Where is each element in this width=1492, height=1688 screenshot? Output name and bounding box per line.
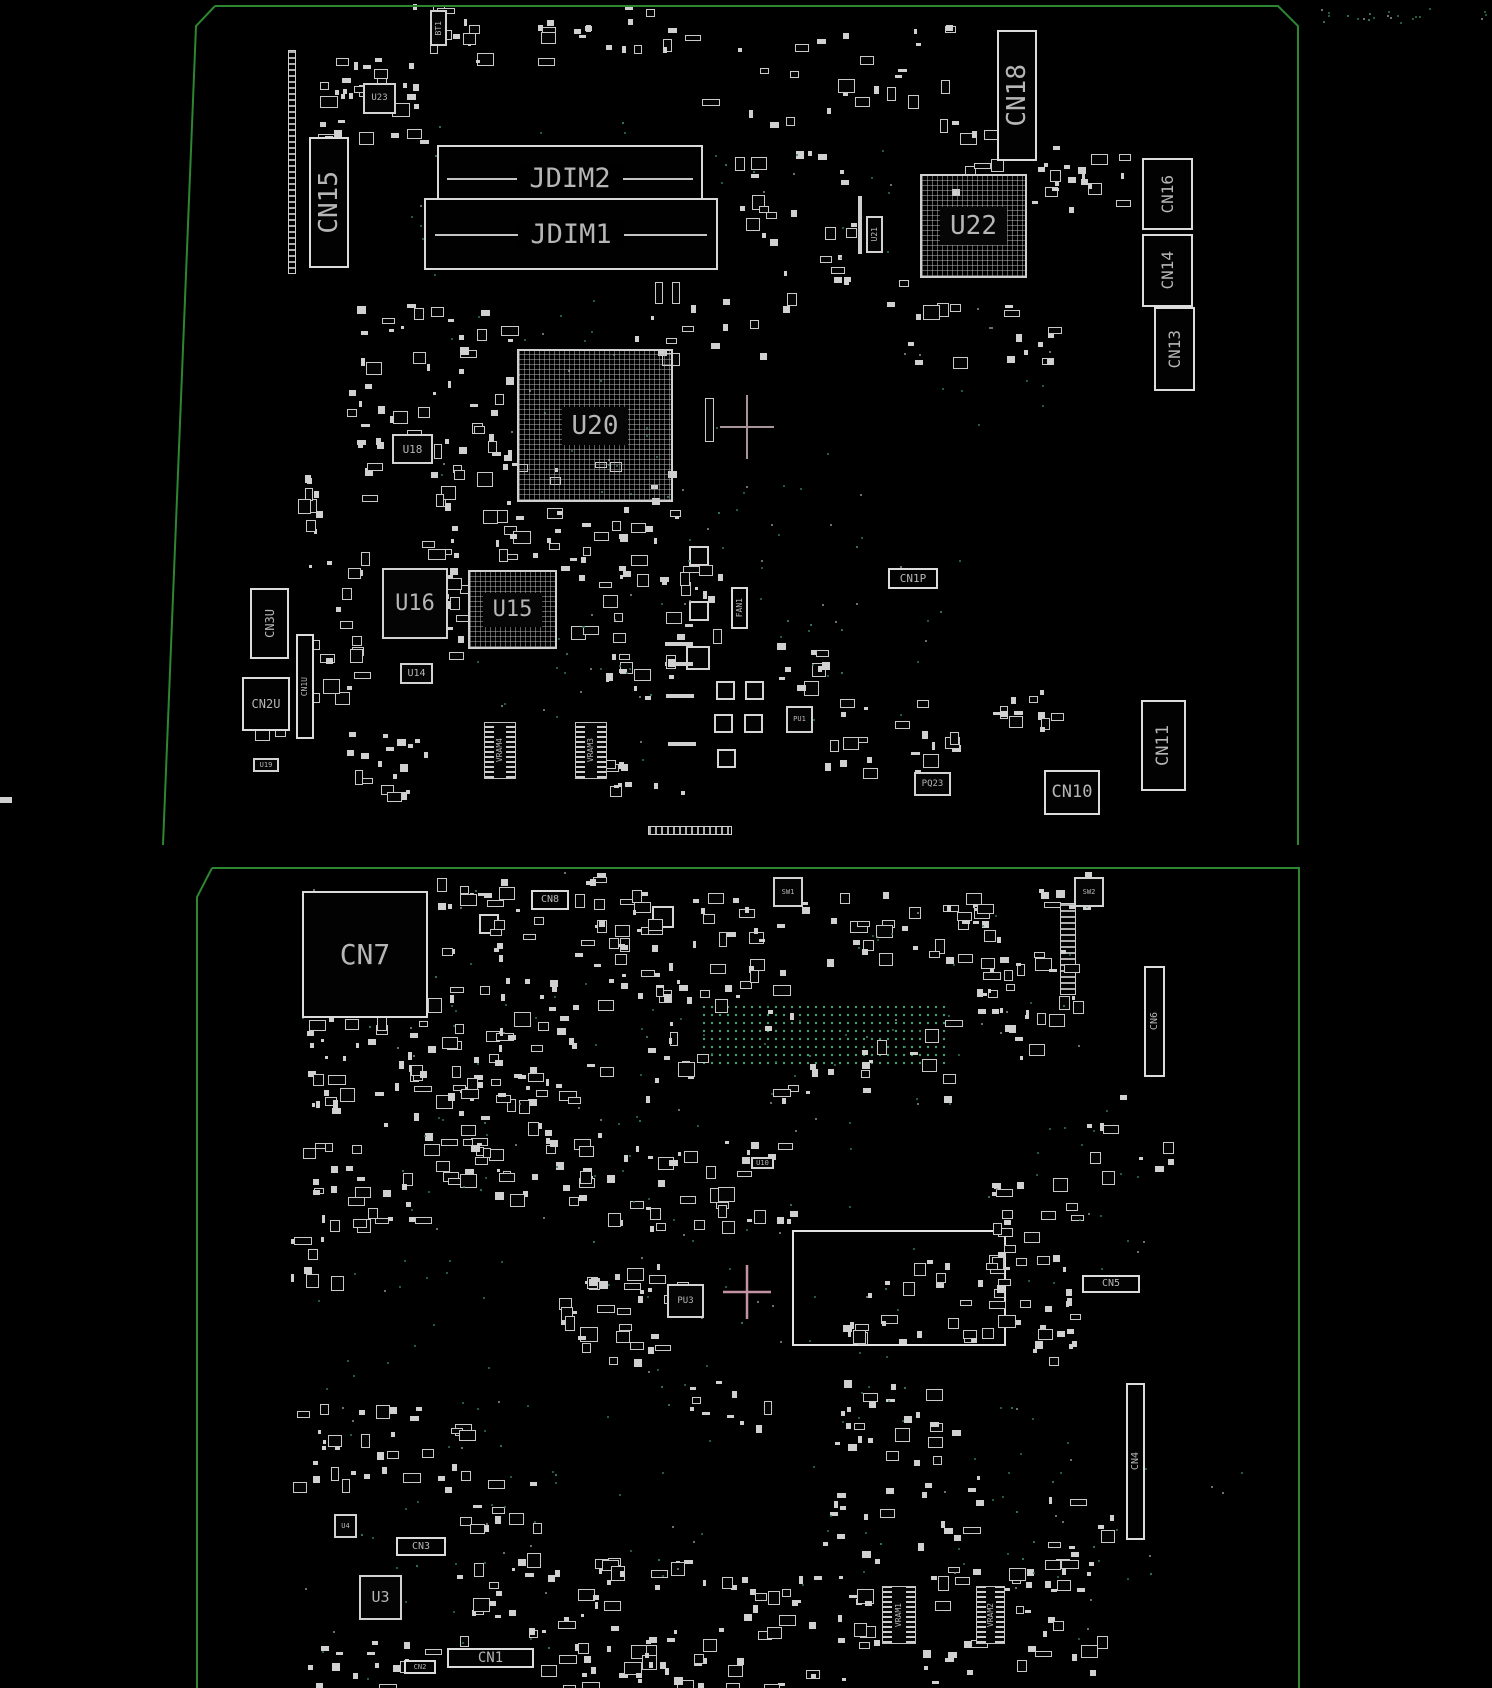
via-dot: [877, 939, 879, 941]
smd-part: [477, 329, 487, 341]
via-dot: [411, 1209, 413, 1211]
smd-part: [313, 1190, 320, 1195]
via-dot: [954, 1572, 956, 1574]
smd-part: [1004, 1267, 1010, 1270]
component-vram1: VRAM1: [882, 1586, 916, 1644]
part-o-22: [705, 398, 714, 442]
smd-part: [1064, 964, 1080, 973]
smd-part: [638, 1296, 643, 1303]
smd-part: [869, 1401, 876, 1408]
smd-part: [424, 1144, 440, 1156]
smd-part: [648, 1048, 656, 1053]
smd-part: [954, 1535, 961, 1541]
smd-part: [613, 633, 626, 643]
smd-part: [916, 1412, 920, 1418]
smd-part: [384, 1123, 388, 1127]
smd-part: [558, 1621, 576, 1629]
smd-part: [972, 1338, 977, 1343]
smd-part: [351, 1471, 356, 1475]
smd-part: [501, 994, 505, 1001]
smd-part: [499, 955, 503, 962]
smd-part: [424, 752, 428, 758]
via-dot: [486, 1134, 488, 1136]
smd-part: [910, 1052, 918, 1055]
via-dot: [917, 912, 919, 914]
smd-part: [840, 699, 855, 708]
smd-part: [361, 424, 370, 427]
smd-part: [416, 1407, 422, 1411]
component-u18: U18: [392, 434, 433, 464]
smd-part: [506, 978, 510, 984]
smd-part: [545, 1130, 552, 1136]
smd-part: [578, 1336, 586, 1340]
via-dot: [461, 1447, 463, 1449]
smd-part: [461, 1125, 476, 1136]
smd-part: [914, 1263, 926, 1276]
smd-part: [710, 964, 726, 974]
smd-part: [842, 1678, 846, 1681]
smd-part: [353, 1673, 358, 1679]
smd-part: [401, 326, 404, 329]
smd-part: [495, 1060, 503, 1066]
smd-part: [402, 1184, 407, 1190]
smd-part: [364, 1474, 370, 1479]
via-dot: [917, 661, 919, 663]
smd-part: [528, 1122, 539, 1136]
via-dot: [958, 1054, 960, 1056]
smd-part: [491, 1079, 501, 1086]
via-dot: [1011, 1407, 1013, 1409]
smd-part: [950, 732, 959, 745]
smd-part: [349, 732, 356, 737]
smd-part: [973, 1569, 981, 1575]
smd-part: [367, 1652, 375, 1655]
component-label-cn14: CN14: [1160, 251, 1176, 290]
smd-part: [307, 1031, 314, 1036]
component-label-cn1: CN1: [478, 1651, 503, 1665]
smd-part: [811, 1674, 816, 1678]
via-dot: [505, 1004, 507, 1006]
smd-part: [340, 1088, 355, 1102]
via-dot: [1429, 8, 1431, 10]
smd-part: [876, 925, 893, 938]
via-dot: [1368, 19, 1370, 21]
smd-part: [874, 1640, 880, 1646]
smd-part: [593, 1595, 599, 1600]
smd-part: [489, 1149, 504, 1161]
smd-part: [903, 1282, 915, 1296]
via-dot: [554, 996, 556, 998]
smd-part: [598, 1133, 602, 1138]
via-dot: [1049, 351, 1051, 353]
via-dot: [484, 1562, 486, 1564]
via-dot: [841, 629, 843, 631]
via-dot: [683, 1234, 685, 1236]
via-dot: [795, 1130, 797, 1132]
smd-part: [407, 129, 422, 139]
smd-part: [316, 511, 323, 518]
via-dot: [1087, 1628, 1089, 1630]
smd-part: [806, 1091, 810, 1094]
smd-part: [529, 1628, 535, 1635]
smd-part: [927, 1260, 933, 1264]
smd-part: [695, 587, 698, 590]
smd-part: [844, 1380, 852, 1388]
smd-part: [336, 1652, 343, 1655]
smd-part: [1040, 690, 1044, 695]
smd-part: [701, 908, 705, 914]
smd-part: [548, 1575, 555, 1582]
via-dot: [361, 1534, 363, 1536]
via-dot: [593, 1241, 595, 1243]
smd-part: [322, 1215, 325, 1223]
component-label-pu3: PU3: [677, 1297, 693, 1306]
smd-part: [1009, 716, 1023, 728]
via-dot: [662, 1472, 664, 1474]
smd-part: [649, 1275, 666, 1284]
smd-part: [908, 95, 919, 109]
smd-part: [670, 1022, 673, 1026]
via-dot: [882, 150, 884, 152]
via-dot: [1079, 1219, 1081, 1221]
smd-part: [431, 307, 444, 317]
smd-part: [343, 1056, 346, 1061]
smd-part: [527, 1553, 541, 1568]
via-dot: [618, 1123, 620, 1125]
smd-part: [666, 612, 682, 624]
smd-part: [519, 1100, 530, 1114]
via-dot: [1211, 1486, 1213, 1488]
smd-part: [538, 58, 555, 66]
via-dot: [584, 340, 586, 342]
smd-part: [541, 32, 556, 44]
via-dot: [711, 1053, 713, 1055]
via-dot: [927, 620, 929, 622]
component-label-u22: U22: [940, 207, 1007, 245]
via-dot: [1020, 1453, 1022, 1455]
smd-part: [782, 1098, 786, 1104]
via-dot: [1328, 15, 1330, 17]
via-dot: [470, 963, 472, 965]
via-dot: [684, 603, 686, 605]
smd-part: [313, 1461, 318, 1465]
smd-part: [727, 1415, 734, 1418]
smd-part: [550, 980, 558, 987]
smd-part: [361, 331, 368, 335]
via-dot: [438, 1117, 440, 1119]
smd-part: [347, 750, 354, 756]
smd-part: [549, 1007, 556, 1011]
smd-part: [635, 336, 639, 342]
smd-part: [1081, 179, 1088, 185]
smd-part: [1020, 1300, 1031, 1308]
component-label-cn6: CN6: [1150, 1012, 1160, 1030]
via-dot: [661, 603, 663, 605]
smd-part: [1047, 359, 1053, 365]
smd-part: [1037, 1256, 1050, 1265]
smd-part: [883, 892, 889, 899]
smd-part: [609, 938, 619, 949]
smd-part: [641, 970, 655, 977]
smd-part: [1081, 1645, 1098, 1658]
smd-part: [503, 464, 508, 470]
smd-part: [694, 1220, 705, 1230]
component-sw2: SW2: [1074, 877, 1104, 907]
smd-part: [309, 1020, 326, 1031]
via-dot: [919, 1030, 921, 1032]
via-dot: [1419, 16, 1421, 18]
smd-part: [346, 1166, 353, 1171]
smd-part: [1007, 356, 1015, 363]
via-dot: [940, 611, 942, 613]
smd-part: [1091, 154, 1108, 165]
smd-part: [750, 320, 759, 329]
via-dot: [1137, 1251, 1139, 1253]
smd-part: [354, 672, 371, 679]
smd-part: [755, 1593, 767, 1601]
smd-part: [1016, 963, 1021, 966]
smd-part: [1045, 1306, 1052, 1312]
component-label-u16: U16: [395, 593, 435, 615]
smd-part: [669, 1038, 672, 1044]
smd-part: [1016, 334, 1022, 342]
component-cn8: CN8: [531, 890, 569, 910]
via-dot: [369, 1026, 371, 1028]
smd-part: [322, 1446, 326, 1450]
smd-part: [549, 543, 560, 550]
smd-part: [450, 987, 464, 993]
smd-part: [615, 925, 630, 937]
via-dot: [500, 1445, 502, 1447]
component-label-u19: U19: [260, 762, 273, 769]
component-label-u20: U20: [562, 407, 629, 445]
smd-part: [1048, 1542, 1061, 1548]
via-dot: [648, 1198, 650, 1200]
smd-part: [699, 565, 713, 576]
smd-part: [977, 989, 983, 997]
smd-part: [383, 1190, 391, 1197]
smd-part: [342, 1479, 350, 1493]
smd-part: [825, 227, 836, 240]
via-dot: [668, 1404, 670, 1406]
component-u4: U4: [334, 1514, 357, 1538]
smd-part: [1100, 1123, 1104, 1131]
smd-part: [404, 1642, 410, 1649]
smd-part: [623, 571, 631, 577]
smd-part: [332, 1663, 340, 1671]
via-dot: [591, 614, 593, 616]
smd-part: [751, 1142, 759, 1149]
smd-part: [768, 1010, 773, 1014]
smd-part: [368, 1039, 376, 1045]
via-dot: [1415, 16, 1417, 18]
smd-part: [809, 1622, 816, 1629]
via-dot: [433, 1324, 435, 1326]
smd-part: [780, 970, 786, 976]
smd-part: [830, 740, 839, 752]
via-dot: [1037, 1152, 1039, 1154]
smd-part: [863, 768, 878, 779]
via-dot: [428, 1191, 430, 1193]
smd-part: [460, 886, 469, 894]
via-dot: [453, 1611, 455, 1613]
smd-part: [379, 1684, 397, 1688]
smd-part: [718, 1205, 727, 1218]
smd-part: [431, 472, 438, 478]
smd-part: [941, 1521, 945, 1528]
component-u15: U15: [468, 570, 557, 649]
smd-part: [1045, 1560, 1061, 1570]
smd-part: [506, 377, 514, 385]
smd-part: [778, 1143, 793, 1150]
smd-part: [1064, 165, 1070, 169]
smd-part: [378, 406, 385, 414]
smd-part: [557, 511, 562, 515]
smd-part: [909, 907, 921, 919]
smd-part: [488, 1480, 505, 1489]
smd-part: [840, 170, 844, 174]
via-dot: [741, 1322, 743, 1324]
smd-part: [559, 1655, 577, 1664]
smd-part: [976, 1500, 984, 1506]
via-dot: [462, 1642, 464, 1644]
smd-part: [1038, 167, 1045, 172]
via-dot: [542, 333, 544, 335]
smd-part: [556, 1084, 562, 1088]
smd-part: [383, 734, 388, 738]
smd-part: [550, 1140, 558, 1147]
smd-part: [367, 463, 383, 471]
smd-part: [860, 56, 874, 65]
via-dot: [1093, 1130, 1095, 1132]
smd-part: [579, 35, 586, 38]
smd-part: [864, 1514, 868, 1520]
smd-part: [389, 329, 394, 332]
smd-part: [779, 1615, 796, 1626]
via-dot: [1062, 1521, 1064, 1523]
smd-part: [293, 1482, 307, 1493]
smd-part: [1004, 970, 1013, 981]
smd-part: [989, 1301, 1006, 1309]
component-label-cn13: CN13: [1167, 330, 1183, 369]
smd-part: [303, 1148, 316, 1159]
smd-part: [600, 1067, 614, 1077]
smd-part: [654, 538, 657, 544]
via-dot: [556, 667, 558, 669]
smd-part: [434, 444, 442, 459]
smd-part: [915, 360, 923, 365]
smd-part: [736, 995, 740, 998]
smd-part: [723, 324, 728, 331]
smd-part: [895, 75, 902, 78]
smd-part: [636, 1146, 639, 1152]
via-dot: [866, 1036, 868, 1038]
via-dot: [856, 546, 858, 548]
via-dot: [322, 1651, 324, 1653]
smd-part: [858, 1436, 862, 1443]
smd-part: [742, 1577, 748, 1583]
smd-part: [359, 1410, 365, 1415]
via-dot: [891, 933, 893, 935]
via-dot: [1106, 1110, 1108, 1112]
smd-part: [764, 1684, 780, 1688]
via-dot: [988, 1196, 990, 1198]
smd-part: [450, 568, 458, 575]
via-dot: [1052, 1481, 1054, 1483]
via-dot: [639, 696, 641, 698]
via-dot: [650, 694, 652, 696]
smd-part: [508, 339, 513, 342]
smd-part: [708, 596, 715, 603]
via-dot: [640, 741, 642, 743]
smd-part: [925, 1483, 932, 1488]
smd-part: [347, 686, 352, 690]
smd-part: [619, 1324, 632, 1331]
smd-part: [366, 362, 382, 375]
via-dot: [680, 1018, 682, 1020]
via-dot: [630, 594, 632, 596]
smd-part: [418, 407, 430, 418]
via-dot: [435, 976, 437, 978]
via-dot: [451, 1005, 453, 1007]
via-dot: [764, 1043, 766, 1045]
smd-part: [445, 439, 449, 444]
smd-part: [399, 1061, 404, 1069]
smd-part: [944, 1528, 953, 1534]
smd-part: [677, 634, 685, 640]
via-dot: [725, 164, 727, 166]
smd-part: [674, 1630, 677, 1634]
smd-part: [622, 46, 626, 53]
smd-part: [993, 712, 1000, 715]
via-dot: [455, 1563, 457, 1565]
via-dot: [775, 1061, 777, 1063]
smd-part: [1039, 889, 1044, 893]
smd-part: [669, 963, 673, 971]
via-dot: [1241, 1472, 1243, 1474]
smd-part: [694, 1654, 704, 1664]
part-dg-19: [700, 1003, 950, 1065]
smd-part: [640, 1290, 644, 1294]
smd-part: [968, 1488, 976, 1492]
smd-part: [376, 1405, 390, 1419]
smd-part: [1056, 890, 1065, 898]
smd-part: [314, 491, 319, 498]
via-dot: [477, 1408, 479, 1410]
smd-part: [886, 1451, 899, 1461]
component-label-cn7: CN7: [340, 941, 391, 969]
via-dot: [477, 661, 479, 663]
via-dot: [812, 664, 814, 666]
smd-part: [586, 25, 591, 32]
smd-part: [612, 654, 616, 660]
via-dot: [890, 184, 892, 186]
smd-part: [572, 1043, 577, 1049]
smd-part: [784, 271, 787, 276]
smd-part: [321, 1237, 324, 1242]
smd-part: [978, 1280, 983, 1287]
smd-part: [377, 442, 384, 449]
smd-part: [658, 1180, 665, 1187]
smd-part: [345, 1019, 359, 1030]
via-dot: [543, 1217, 545, 1219]
via-dot: [448, 1446, 450, 1448]
smd-part: [1040, 727, 1045, 732]
smd-part: [1163, 1142, 1174, 1154]
smd-part: [413, 4, 417, 10]
via-dot: [859, 1352, 861, 1354]
smd-part: [654, 783, 658, 789]
